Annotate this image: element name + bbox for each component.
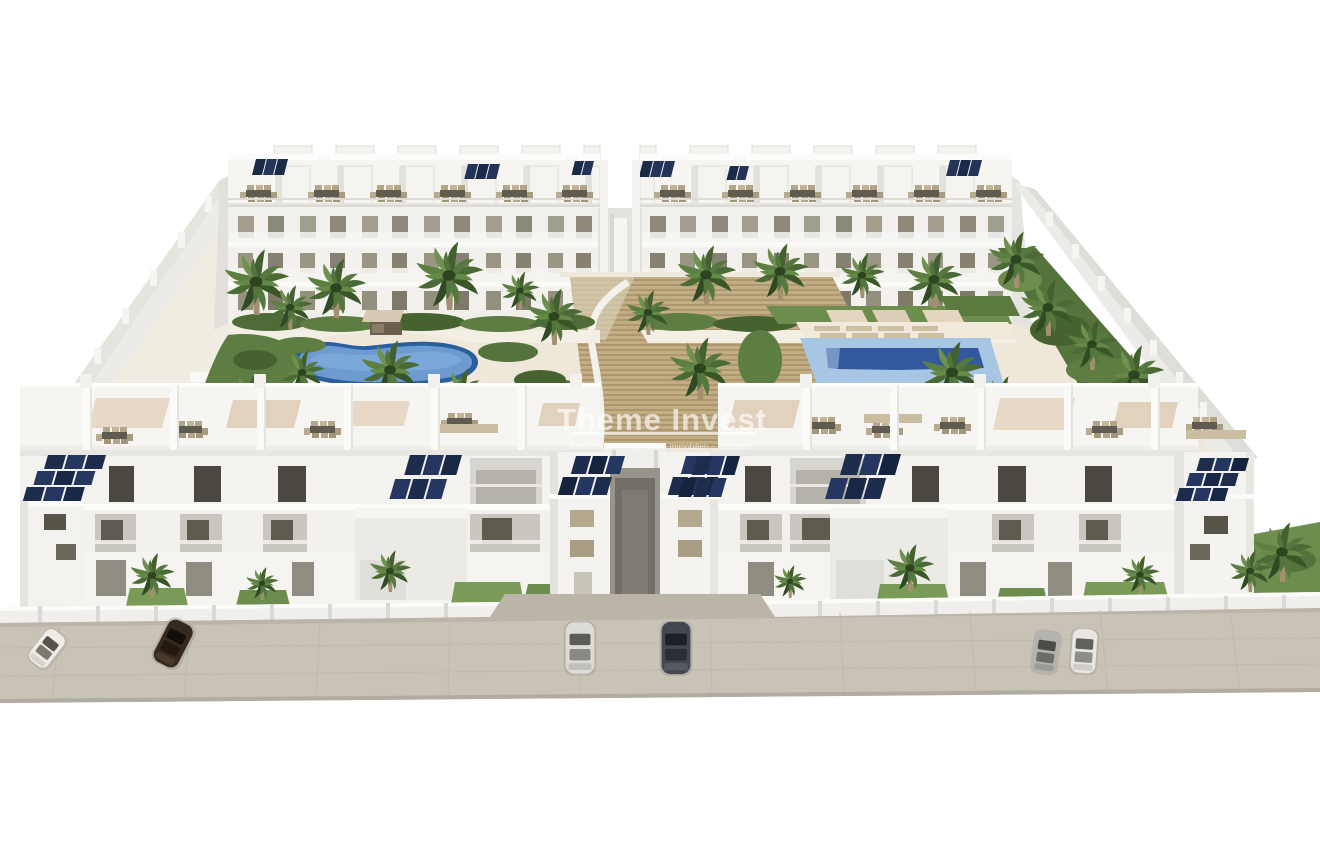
svg-text:Theme Invest: Theme Invest xyxy=(557,402,767,437)
svg-text:Real Estate – Inmobiliaria – I: Real Estate – Inmobiliaria – Immobilien … xyxy=(570,442,751,451)
